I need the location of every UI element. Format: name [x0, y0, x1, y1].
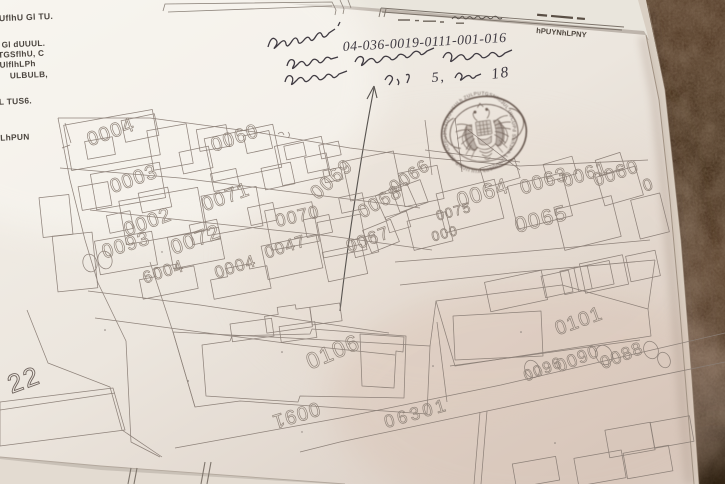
- svg-text:ULhPUN: ULhPUN: [0, 131, 30, 143]
- svg-text:18: 18: [490, 64, 511, 83]
- svg-text:ULBULB,: ULBULB,: [10, 70, 48, 81]
- svg-text:3L TUS6.: 3L TUS6.: [0, 95, 32, 107]
- svg-text:5,: 5,: [431, 70, 446, 86]
- svg-text:PUlflhLPh: PUlflhLPh: [0, 59, 36, 70]
